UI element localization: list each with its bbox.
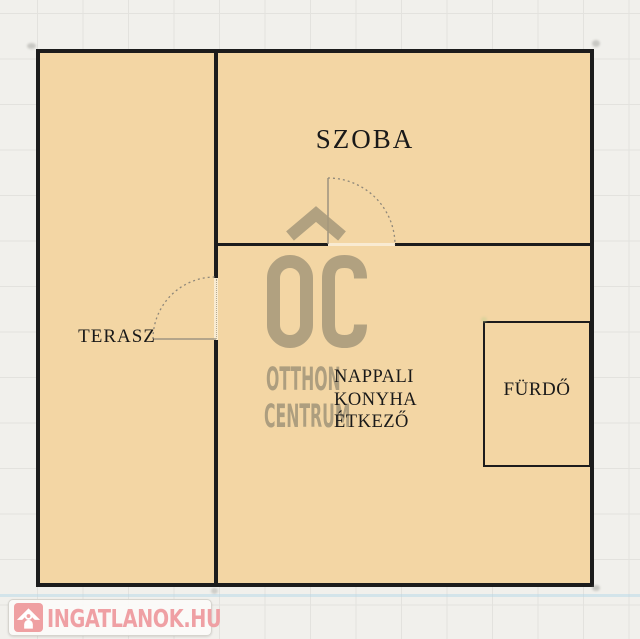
room-label-terasz: TERASZ [58,326,176,348]
house-door [24,620,33,629]
corner-artifact [592,40,600,47]
room-label-nappali-line2: KONYHA [334,389,454,412]
scan-artifact-line [0,594,640,597]
ingatlanok-logo-text: INGATLANOK.HU [47,604,221,633]
room-label-nappali-line3: ÉTKEZŐ [334,411,454,434]
ingatlanok-logo: INGATLANOK.HU [8,599,212,636]
watermark-otthon: OTTHON [266,360,341,398]
corner-artifact [592,585,600,591]
room-label-nappali: NAPPALI KONYHA ÉTKEZŐ [334,366,454,434]
house-icon [14,603,43,632]
house-window [26,613,32,619]
room-label-furdo: FÜRDŐ [477,379,597,401]
corner-artifact [481,317,487,322]
floor-plan-image: OTTHON CENTRUM SZOBA TERASZ NAPPALI KONY… [0,0,640,639]
corner-artifact [27,43,36,49]
room-label-szoba: SZOBA [285,124,445,155]
room-label-nappali-line1: NAPPALI [334,366,454,389]
